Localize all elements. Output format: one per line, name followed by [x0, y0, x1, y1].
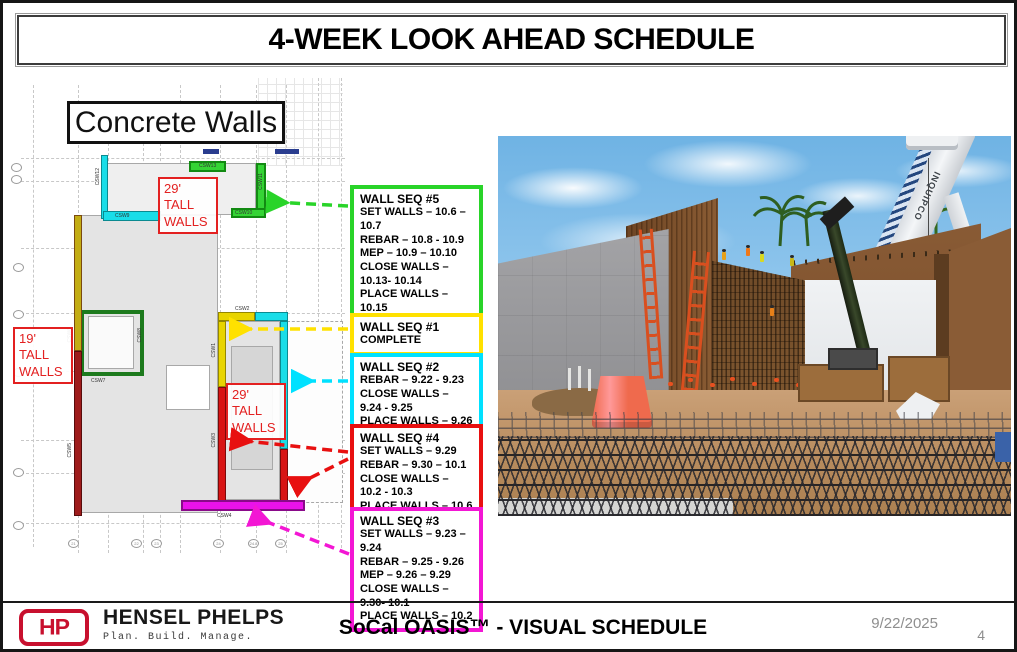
worker [770, 308, 774, 316]
plan-wall-navy [203, 149, 219, 154]
callout-title: WALL SEQ #4 [360, 431, 473, 445]
concrete-walls-floor-plan: CSW12 CSW9 CSW13 CSW11 CSW10 CSW6 CSW5 C… [17, 73, 349, 603]
callout-wall-seq-3: WALL SEQ #3 SET WALLS – 9.23 – 9.24 REBA… [350, 507, 483, 632]
blue-equipment [995, 432, 1011, 462]
plan-wall-csw1 [218, 321, 226, 387]
logo-monogram: HP [39, 615, 69, 641]
worker [790, 258, 794, 266]
construction-site-photo: INQUIPCO [498, 136, 1011, 516]
callout-wall-seq-1: WALL SEQ #1 COMPLETE [350, 313, 483, 356]
worker [722, 252, 726, 260]
plan-shaft-x [88, 316, 134, 369]
slide-title-box: 4-WEEK LOOK AHEAD SCHEDULE [17, 15, 1006, 65]
grid-bubble [13, 521, 24, 530]
callout-line: CLOSE WALLS – 9.30- 10.1 [360, 583, 473, 610]
plan-wall-cyan-top [255, 312, 288, 321]
rebar-laydown [498, 412, 1011, 438]
callout-line: COMPLETE [360, 334, 473, 348]
plan-grid-line [21, 523, 345, 524]
grid-bubble: 24.8 [248, 539, 259, 548]
callout-line: REBAR – 9.30 – 10.1 [360, 459, 473, 473]
wall-tag: CSW11 [258, 173, 264, 190]
callout-wall-seq-5: WALL SEQ #5 SET WALLS – 10.6 – 10.7 REBA… [350, 185, 483, 323]
hensel-phelps-logo: HP [19, 609, 89, 646]
wall-tag: CSW2 [235, 306, 249, 312]
plan-room [287, 321, 343, 503]
plan-shaft-x [166, 365, 210, 410]
slide-date: 9/22/2025 [848, 615, 938, 632]
callout-line: SET WALLS – 10.6 – 10.7 [360, 206, 473, 233]
grid-bubble [11, 175, 22, 184]
callout-line: PLACE WALLS – 10.15 [360, 288, 473, 315]
wall-tag: CSW7 [91, 378, 105, 384]
plan-wall-csw6 [74, 215, 82, 351]
callout-line: REBAR – 9.25 - 9.26 [360, 556, 473, 570]
callout-line: CLOSE WALLS – 10.13- 10.14 [360, 261, 473, 288]
callout-line: SET WALLS – 9.29 [360, 445, 473, 459]
rebar-cap [752, 382, 757, 386]
plan-wall-csw5 [74, 351, 82, 516]
wall-tag: CSW1 [211, 343, 217, 357]
company-name: HENSEL PHELPS [103, 606, 284, 630]
wall-tag: CSW9 [115, 213, 129, 219]
label-29-tall-walls-top: 29' TALL WALLS [158, 177, 218, 234]
wall-tag: CSW5 [67, 443, 73, 457]
callout-line: CLOSE WALLS – 10.2 - 10.3 [360, 473, 473, 500]
page-number: 4 [955, 627, 985, 643]
callout-line: MEP – 9.26 – 9.29 [360, 569, 473, 583]
wall-tag: CSW8 [137, 328, 143, 342]
label-19-tall-walls: 19' TALL WALLS [13, 327, 73, 384]
grid-bubble [13, 263, 24, 272]
plan-wall-csw3 [218, 387, 226, 503]
rebar-cap [730, 377, 735, 381]
rebar-cap [774, 378, 779, 382]
plan-wall-csw4 [181, 500, 305, 511]
stake [578, 366, 581, 388]
callout-line: CLOSE WALLS – 9.24 - 9.25 [360, 388, 473, 415]
wall-tag: CSW13 [199, 163, 216, 169]
worker [760, 254, 764, 262]
grid-bubble: 21 [68, 539, 79, 548]
rebar-cap [710, 383, 715, 387]
plan-heading-box: Concrete Walls [67, 101, 285, 144]
grid-bubble: 22 [131, 539, 142, 548]
grid-bubble [11, 163, 22, 172]
plan-wall-csw9 [103, 211, 161, 221]
callout-line: REBAR – 10.8 - 10.9 [360, 234, 473, 248]
company-block: HENSEL PHELPS Plan. Build. Manage. [103, 606, 284, 643]
worker [746, 248, 750, 256]
slide: 4-WEEK LOOK AHEAD SCHEDULE [0, 0, 1017, 652]
palm-trees [750, 178, 834, 248]
footer-divider [3, 601, 1014, 603]
plan-wall-csw12 [101, 155, 108, 219]
plan-wall-yellow-top [218, 312, 255, 321]
plan-grid-line [33, 85, 34, 547]
wall-tag: CSW4 [217, 513, 231, 519]
plan-wall-red-right [280, 449, 288, 503]
plan-heading-text: Concrete Walls [75, 106, 277, 140]
rebar-mats-foreground [498, 436, 1011, 516]
grid-bubble [13, 310, 24, 319]
callout-title: WALL SEQ #1 [360, 320, 473, 334]
plan-wall-navy [275, 149, 299, 154]
callout-line: SET WALLS – 9.23 – 9.24 [360, 528, 473, 555]
footer-subtitle: SoCal OASIS™ - VISUAL SCHEDULE [303, 616, 743, 640]
grid-bubble: 25 [275, 539, 286, 548]
callout-title: WALL SEQ #2 [360, 360, 473, 374]
rebar-cap [668, 382, 673, 386]
slide-title: 4-WEEK LOOK AHEAD SCHEDULE [269, 23, 755, 57]
wall-tag: CSW12 [95, 168, 101, 185]
rebar-curtain-wall [712, 258, 805, 398]
formwork-wall-far-right [948, 228, 1011, 398]
label-29-tall-walls-mid: 29' TALL WALLS [226, 383, 286, 440]
callout-line: MEP – 10.9 – 10.10 [360, 247, 473, 261]
grid-bubble: 24 [213, 539, 224, 548]
stake [588, 369, 591, 391]
rebar-cap [688, 378, 693, 382]
wall-tag: CSW10 [235, 210, 252, 216]
dumpster [828, 348, 878, 370]
crane-head-machinery [906, 136, 958, 150]
callout-line: REBAR – 9.22 - 9.23 [360, 374, 473, 388]
company-tagline: Plan. Build. Manage. [103, 632, 284, 643]
wall-tag: CSW3 [211, 433, 217, 447]
stake [568, 368, 571, 390]
callout-title: WALL SEQ #3 [360, 514, 473, 528]
callout-title: WALL SEQ #5 [360, 192, 473, 206]
grid-bubble [13, 468, 24, 477]
grid-bubble: 23 [151, 539, 162, 548]
